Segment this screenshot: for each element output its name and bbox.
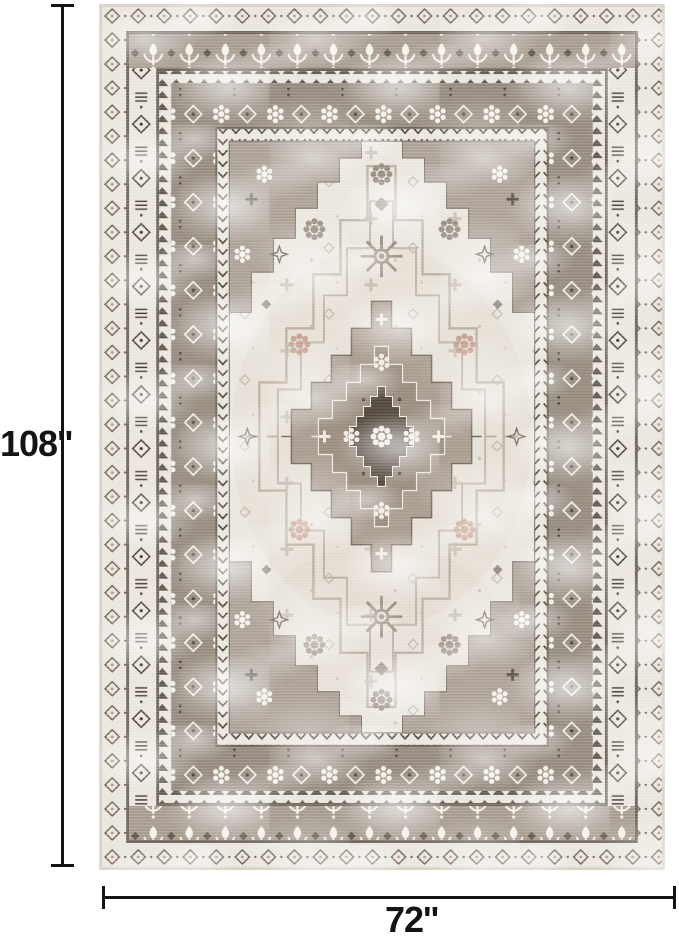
distress-texture — [99, 4, 665, 870]
height-dimension-label: 108'' — [0, 426, 72, 462]
width-dimension-label: 72'' — [385, 902, 438, 938]
rug-image — [99, 4, 665, 870]
product-dimension-image: 108'' 72'' — [0, 0, 679, 934]
